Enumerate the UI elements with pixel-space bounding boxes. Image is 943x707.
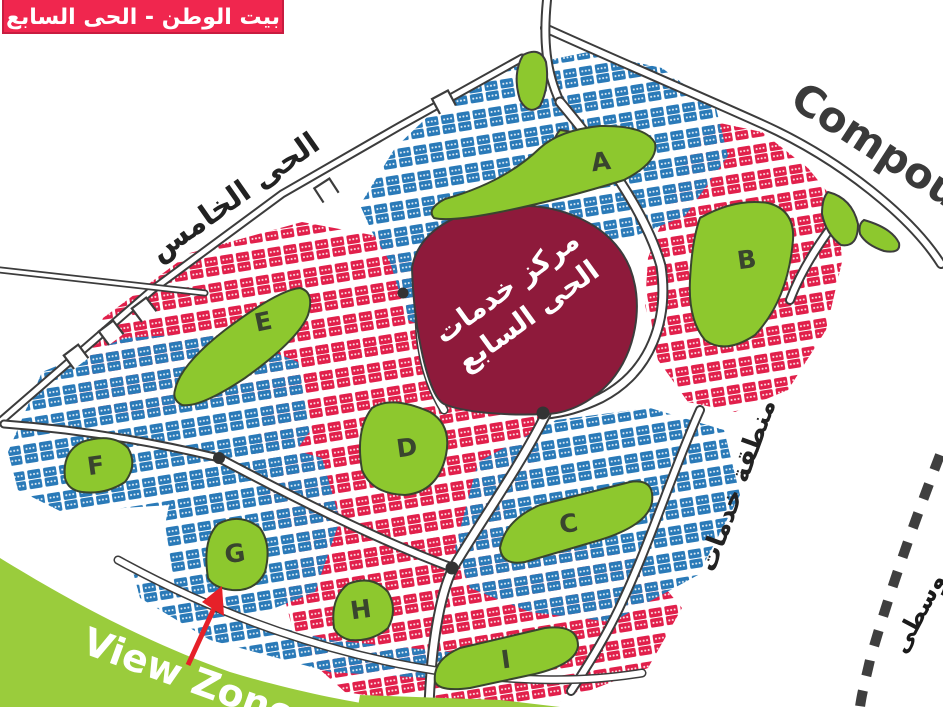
green-island-top-left [517, 52, 548, 110]
roundabout-dot [537, 407, 550, 420]
roundabout-dot [213, 452, 225, 464]
title-banner: بيت الوطن - الحى السابع [3, 0, 283, 33]
parking-notch [314, 179, 338, 203]
green-island-right-2 [860, 220, 900, 252]
block-label-H: H [348, 594, 373, 626]
block-label-D: D [395, 432, 420, 464]
block-label-G: G [223, 538, 247, 570]
map-canvas: مركز خدمات الحى السابع A B C D E F G H I… [0, 0, 943, 707]
title-banner-text: بيت الوطن - الحى السابع [6, 5, 280, 30]
masterplan-map: مركز خدمات الحى السابع A B C D E F G H I… [0, 0, 943, 707]
block-label-B: B [735, 244, 758, 275]
roundabout-dot [398, 288, 409, 299]
roundabout-dot [446, 562, 459, 575]
